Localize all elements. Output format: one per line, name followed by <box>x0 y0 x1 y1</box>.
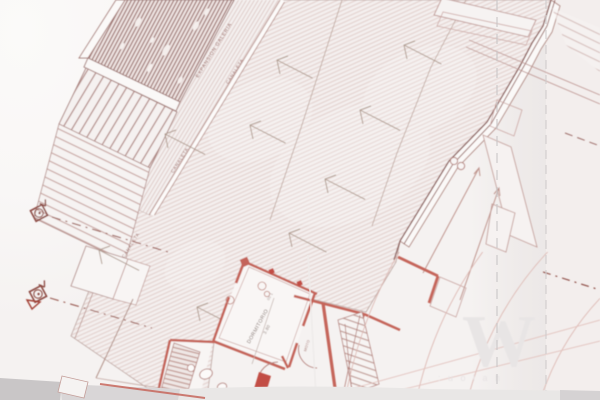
svg-text:. : u o l a h: . : u o l a h <box>428 373 503 383</box>
svg-text:W: W <box>462 301 536 383</box>
